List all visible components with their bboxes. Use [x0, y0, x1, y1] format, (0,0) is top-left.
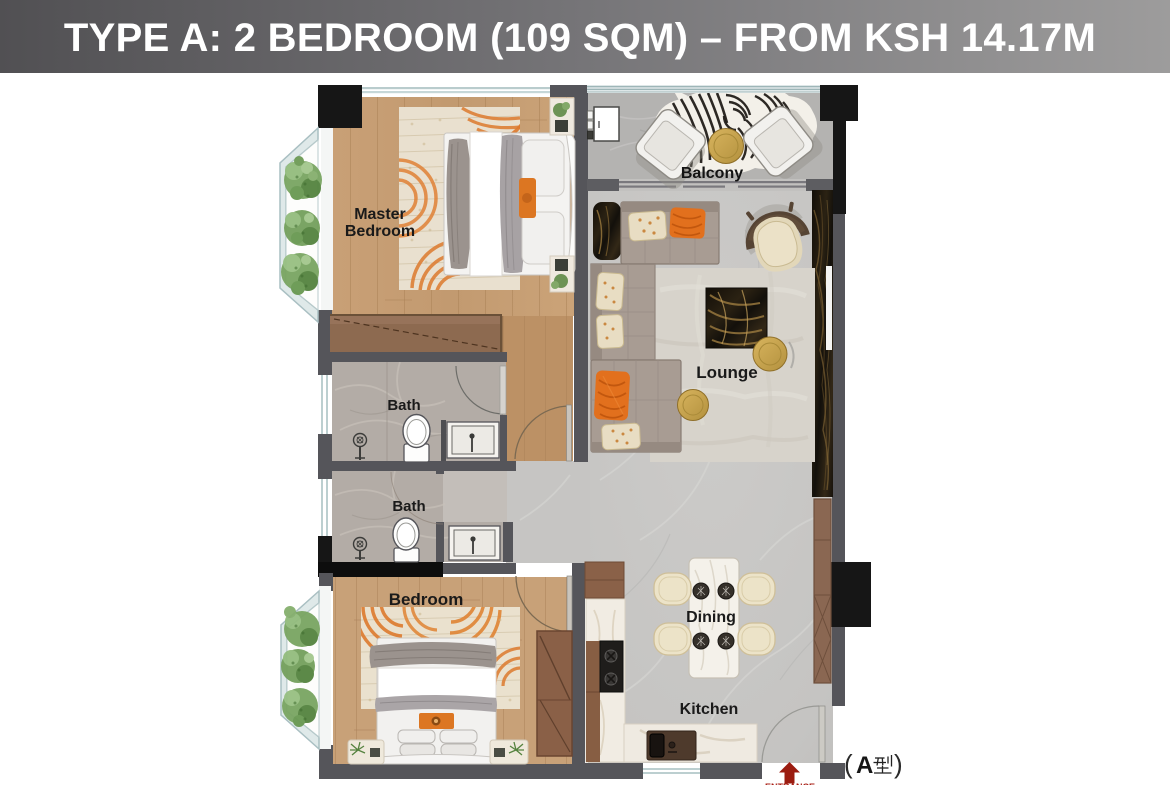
svg-text:TYPE A: 2 BEDROOM (109 SQM) –: TYPE A: 2 BEDROOM (109 SQM) – FROM KSH 1…: [64, 16, 1096, 60]
svg-text:Kitchen: Kitchen: [680, 701, 739, 718]
svg-text:Master: Master: [354, 206, 406, 223]
svg-text:Dining: Dining: [686, 609, 736, 626]
svg-text:A: A: [856, 752, 873, 779]
svg-text:Bedroom: Bedroom: [389, 590, 464, 609]
svg-text:Balcony: Balcony: [681, 165, 743, 182]
svg-text:Bedroom: Bedroom: [345, 223, 415, 240]
svg-text:Bath: Bath: [392, 498, 425, 515]
svg-text:Bath: Bath: [387, 397, 420, 414]
svg-text:(: (: [844, 749, 853, 779]
svg-text:Lounge: Lounge: [696, 363, 757, 382]
svg-text:): ): [894, 749, 903, 779]
